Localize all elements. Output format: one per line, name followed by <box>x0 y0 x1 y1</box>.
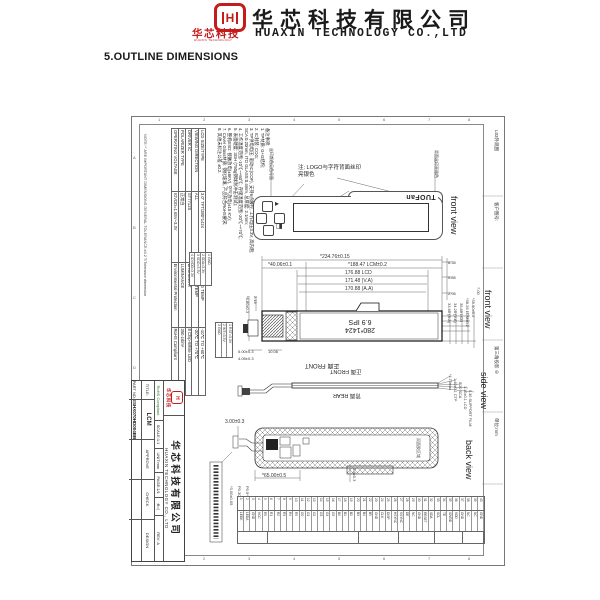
pin-number: 32 <box>429 498 433 502</box>
pin-name: LEDK <box>239 512 243 520</box>
partno-label-cell: PART NO: <box>129 381 141 400</box>
sub-table-b: 1 RST=3.3V2 INT=3.3V3 GND <box>215 322 233 358</box>
sub-b-row: 1 RST=3.3V <box>227 323 232 357</box>
pin-group-cell <box>359 532 399 543</box>
spec-cell: DRIVER IC <box>185 129 192 192</box>
right-strip-label: 第三角投影 ⊕ <box>493 346 499 374</box>
pin-number: 34 <box>442 498 446 502</box>
pin-name: NC <box>411 512 415 517</box>
spec-cell: LUMINANCE <box>178 262 185 327</box>
back-dim-bottom: *65.00±0.5 <box>262 473 286 479</box>
pin-name: B1 <box>343 512 347 516</box>
pin-name: G1 <box>306 512 310 516</box>
pin-number: 11 <box>300 498 304 501</box>
back-view-label: back view <box>464 440 474 480</box>
pin-number: 3 <box>251 498 255 500</box>
zone-top: 4 <box>293 117 295 122</box>
dim-right-2: 0.85 <box>448 275 456 280</box>
dim-stack-lcm: *38.26 LCM±0.2 <box>465 298 470 327</box>
back-dim-top: 3.00±0.3 <box>225 419 244 425</box>
zone-top: 6 <box>383 117 385 122</box>
section-title: 5.OUTLINE DIMENSIONS <box>104 51 238 63</box>
spec-cell: -10℃ TO +60℃ <box>199 327 206 396</box>
page: { "header": { "logo_mark": "H", "logo_na… <box>0 0 600 600</box>
dim-stack-outline: *39.80±0.2 <box>471 298 476 317</box>
pin-name: GND <box>479 512 483 519</box>
spec-cell: VIEWING DIRECTION <box>192 129 199 192</box>
pin-name: R3 <box>282 512 286 516</box>
pin-number: 13 <box>312 498 316 502</box>
side-callout-2: 1.40±0.1 CTP <box>453 378 457 401</box>
dim-overall-width: *234.76±0.15 <box>320 254 350 260</box>
pin-name: R2 <box>276 512 280 516</box>
title-block-company-en: HUAXIN TECHNOLOGY CO., LTD <box>165 448 170 529</box>
brand-logo-text: TUOFan <box>406 193 436 200</box>
zone-bottom: 4 <box>293 556 295 561</box>
unit-cell: UNIT:mm <box>155 449 163 473</box>
check-sign-cell <box>129 480 141 520</box>
pin-number: 22 <box>368 498 372 502</box>
front-view-label-2: front view <box>483 290 493 329</box>
pin-number: 2 <box>245 498 249 500</box>
zone-bottom: 8 <box>468 556 470 561</box>
spec-cell: Environmental Protection <box>171 262 178 327</box>
dim-left-219: 2.19 <box>253 296 258 304</box>
pin-number: 9 <box>288 498 292 500</box>
spec-cell: OPERATING VOLTAGE <box>171 129 178 192</box>
pin-name: SCL <box>436 512 440 518</box>
zone-top: 7 <box>428 117 430 122</box>
dim-stack-aa: 33.60 (A.A) <box>447 303 452 323</box>
pin-number: 30 <box>417 498 421 502</box>
dim-stack-va: 34.20 (V.A) <box>453 303 458 323</box>
pin-name: GND <box>374 512 378 519</box>
note-line: 5. 表面硬度: 3GH (750g钢球耐冲击测试); <box>232 128 237 394</box>
dim-lcd-width: 176.88 LCD <box>345 270 372 276</box>
pin-name: RESET <box>423 512 427 523</box>
spec-cell: LCD SIZE/TYPE <box>199 129 206 192</box>
approve-cell: APPROVE <box>142 440 154 480</box>
rev-cell: REV: A <box>155 516 163 561</box>
pin-name: B5 <box>368 512 372 516</box>
pin-number: 5 <box>263 498 267 500</box>
scale-cell: SCALE:1:1 <box>155 421 163 449</box>
pin-name: DISP <box>386 512 390 519</box>
zone-top: 2 <box>203 117 205 122</box>
pin-number: 21 <box>362 498 366 502</box>
pin-number: 16 <box>331 498 335 502</box>
pin-number: 20 <box>356 498 360 502</box>
pin-group-cell <box>463 532 484 543</box>
pin-group-cell <box>238 532 268 543</box>
projection-symbol: ⊕◁ <box>155 498 163 517</box>
back-dim-notch: 3.6±0.3 <box>352 468 357 481</box>
pin-name: IOVDD <box>448 512 452 522</box>
pin-number: 14 <box>319 498 323 502</box>
title-block-logo-name: 华芯科技 <box>165 388 171 408</box>
note-line: 1. TP材质: G+G结构; <box>259 128 264 394</box>
pin-number: 27 <box>399 498 403 502</box>
zone-left: A <box>133 155 136 160</box>
pin-number-row: 1234567891011121314151617181920212223242… <box>238 497 484 510</box>
silkscreen-note: 注: LOGO与字符背面丝印 亮银色 <box>298 165 361 178</box>
pin-number: 8 <box>282 498 286 500</box>
zone-bottom: 5 <box>338 556 340 561</box>
device-button-4 <box>263 225 274 236</box>
pin-name-row: LEDKLEDAGNDVCCR0R1R2R3R4R5G0G1G2G3G4G5B0… <box>238 510 484 531</box>
pin-name: G3 <box>319 512 323 516</box>
spec-cell: 正常白 <box>178 191 185 262</box>
zone-bottom: 7 <box>428 556 430 561</box>
pin-number: 19 <box>349 498 353 502</box>
spec-row: POLARIZER TYPE正常白LUMINANCE350 cd/m² <box>178 129 185 396</box>
dim-stack-lcd: 35.80 LCD <box>459 303 464 322</box>
pin-number: 29 <box>411 498 415 502</box>
device-display-window <box>293 203 429 232</box>
note-line: SCA:0.20mm, ITO GLASS:0.4mm, 总厚度: 2.1mm; <box>243 128 248 394</box>
fpc-dim-1: *3.00±0.05 <box>229 486 234 505</box>
pin-name: R4 <box>288 512 292 516</box>
panel-resolution: 280*1424 <box>330 324 390 332</box>
pin-number: 18 <box>343 498 347 502</box>
pin-number: 6 <box>269 498 273 500</box>
pin-number-cell: 40 <box>478 497 484 510</box>
zone-top: 5 <box>338 117 340 122</box>
title-block-logo: H 华芯科技 <box>164 381 184 416</box>
pin-number: 12 <box>306 498 310 502</box>
pin-table: 1234567891011121314151617181920212223242… <box>237 496 485 544</box>
pin-number: 23 <box>374 498 378 502</box>
pin-name: VCC <box>257 512 261 519</box>
pin-name: G0 <box>300 512 304 516</box>
pin-name: B3 <box>356 512 360 516</box>
right-strip-label: 客户图号: <box>493 202 499 221</box>
pin-number: 25 <box>386 498 390 502</box>
pin-number: 10 <box>294 498 298 502</box>
pin-group-cell <box>399 532 435 543</box>
back-inner-label: 双面胶区域 <box>415 438 421 458</box>
pin-name: CLK <box>380 512 384 518</box>
tolerance-note: NOTE:'*' ARE IMPORTANT DIMENSIONS GENERA… <box>143 134 147 296</box>
spec-cell: IOVDD=1.65V~3.3V <box>171 191 178 262</box>
half-fill-icon: ◨ <box>276 222 283 230</box>
dim-lcm-width: *188.47 LCM±0.2 <box>348 262 387 268</box>
dim-right-3: 2.95 <box>448 291 456 296</box>
title-label-cell: TITLE: <box>142 381 154 400</box>
zone-bottom: 2 <box>203 556 205 561</box>
zone-top: 8 <box>468 117 470 122</box>
pin-name: G4 <box>325 512 329 516</box>
pin-name: VDD <box>454 512 458 519</box>
side-front-label: 正面 FRONT <box>330 368 361 376</box>
arrow-icon: ▸ <box>275 199 279 208</box>
front-right-note: 背面丝印亮银色 <box>433 150 439 178</box>
partno-value-cell: ESHX070HD004BB <box>129 400 141 440</box>
pin-number: 1 <box>239 498 243 500</box>
spec-cell: 8 Chip-White LED <box>185 327 192 396</box>
title-block-logo-mark: H <box>171 391 183 404</box>
side-callout-5: 0.30 SUPPORT FILM <box>468 390 472 426</box>
approve-sign-cell <box>129 440 141 480</box>
check-cell: CHECK <box>142 480 154 520</box>
pin-name: GND <box>460 512 464 519</box>
pin-name: B4 <box>362 512 366 516</box>
zone-left: B <box>133 225 136 230</box>
pin-number: 17 <box>337 498 341 502</box>
pin-name: R5 <box>294 512 298 516</box>
dim-left-segment: *40.06±0.1 <box>268 262 292 268</box>
pin-name: SDA <box>429 512 433 519</box>
dim-left-680: *6.80±0.3 <box>245 296 250 313</box>
pin-name: GND <box>251 512 255 519</box>
pin-number: 24 <box>380 498 384 502</box>
dim-right-1: 6.35 <box>448 260 456 265</box>
side-callout-4: 1.10±0.1 LCD <box>463 386 467 409</box>
front-left-note: 丝印颜色见色号图 <box>268 148 274 180</box>
pin-name: B0 <box>337 512 341 516</box>
pin-name: LEDA <box>245 512 249 520</box>
zone-left: C <box>133 295 136 300</box>
zone-bottom: 3 <box>248 556 250 561</box>
front-view-label: front view <box>449 196 459 235</box>
company-logo-subtext: HUAXIN TECHNOLOGY <box>194 38 232 42</box>
note-line: 4. 工作温度范围:-10℃~+60℃; 存储温度范围:-20℃~+70℃; <box>238 128 243 394</box>
pin-number: 26 <box>393 498 397 502</box>
dim-aa-width: 170.88 (A.A) <box>345 286 373 292</box>
spec-cell: POLARIZER TYPE <box>178 129 185 192</box>
pin-name-cell: GND <box>478 511 484 531</box>
device-button-2 <box>256 213 267 224</box>
dim-va-width: 171.48 (V.A) <box>345 278 373 284</box>
dim-stack-7: 7.00 <box>476 287 481 295</box>
pin-number: 7 <box>276 498 280 500</box>
right-strip-label: L03外观图 <box>493 130 499 151</box>
spec-row: OPERATING VOLTAGEIOVDD=1.65V~3.3VEnviron… <box>171 129 178 396</box>
side-view-label: side view <box>479 372 489 409</box>
pin-name: DE <box>405 512 409 516</box>
title-block-company: 华芯科技有限公司 HUAXIN TECHNOLOGY CO., LTD <box>164 416 184 561</box>
pin-name: G2 <box>312 512 316 516</box>
pin-number: 40 <box>479 498 483 502</box>
design-sign-cell <box>129 520 141 561</box>
title-value-cell: LCM <box>142 400 154 440</box>
zone-left: D <box>133 365 136 370</box>
pin-number: 39 <box>473 498 477 502</box>
page-cell: PAGE:1/1 <box>155 473 163 497</box>
note-line: 3. TP供电电压: 驱动IC(COF), 支持6点触控, 工作电压3.3V, … <box>249 128 254 394</box>
sub-table-a: 1 GND2 SDA=3.3V3 SDO=3.3V4 IOVDD=3.3V <box>189 252 212 286</box>
pin-number: 37 <box>460 498 464 502</box>
title-block-company-cn: 华芯科技有限公司 <box>170 440 184 536</box>
device-button-1 <box>262 201 273 212</box>
design-cell: DESIGN <box>142 520 154 561</box>
pin-group-row <box>238 531 484 543</box>
silkscreen-note-line1: 注: LOGO与字符背面丝印 <box>298 165 361 172</box>
rohs-cell: RoHS Compliant <box>155 381 163 421</box>
dim-left-500: 5.00±0.3 <box>238 349 254 354</box>
pin-name: GND <box>417 512 421 519</box>
zone-bottom: 6 <box>383 556 385 561</box>
pin-name: HSYNC <box>393 512 397 523</box>
spec-cell: -20℃ TO +70℃ <box>192 327 199 396</box>
pin-number: 36 <box>454 498 458 502</box>
pin-number: 4 <box>257 498 261 500</box>
pin-group-cell <box>435 532 463 543</box>
pin-number: 15 <box>325 498 329 502</box>
side-callout-3: 0.20 SCA <box>458 382 462 398</box>
side-callout-1: *4.70max <box>448 374 452 390</box>
pin-number: 33 <box>436 498 440 502</box>
sub-a-row: 1 GND <box>206 253 211 285</box>
zone-top: 3 <box>248 117 250 122</box>
company-logo-mark: H <box>222 12 239 24</box>
title-block: H 华芯科技 华芯科技有限公司 HUAXIN TECHNOLOGY CO., L… <box>131 380 185 562</box>
pin-name: G5 <box>331 512 335 516</box>
pin-name: R0 <box>263 512 267 516</box>
pin-name: NC <box>473 512 477 517</box>
pin-number: 35 <box>448 498 452 502</box>
dim-left-1006: 10.06 <box>268 349 278 354</box>
panel-size-type: 6.9 IPS <box>330 316 390 324</box>
pin-name: B2 <box>349 512 353 516</box>
dim-left-405: 4.05±0.3 <box>238 356 254 361</box>
pin-name: R1 <box>269 512 273 516</box>
pin-number: 28 <box>405 498 409 502</box>
pin-group-cell <box>268 532 359 543</box>
panel-center-text: 280*1424 6.9 IPS <box>330 316 390 333</box>
company-name-en: HUAXIN TECHNOLOGY CO.,LTD <box>255 27 468 40</box>
pin-name: VSYNC <box>399 512 403 523</box>
pin-number: 38 <box>466 498 470 502</box>
pin-number: 31 <box>423 498 427 502</box>
pin-name: NC <box>466 512 470 517</box>
side-rear-label: 背面 REAR <box>333 392 361 400</box>
pin-name: TE <box>442 512 446 516</box>
zone-top: 1 <box>158 117 160 122</box>
right-strip-label: 单位:mm <box>493 418 499 436</box>
silkscreen-note-line2: 亮银色 <box>298 172 361 179</box>
